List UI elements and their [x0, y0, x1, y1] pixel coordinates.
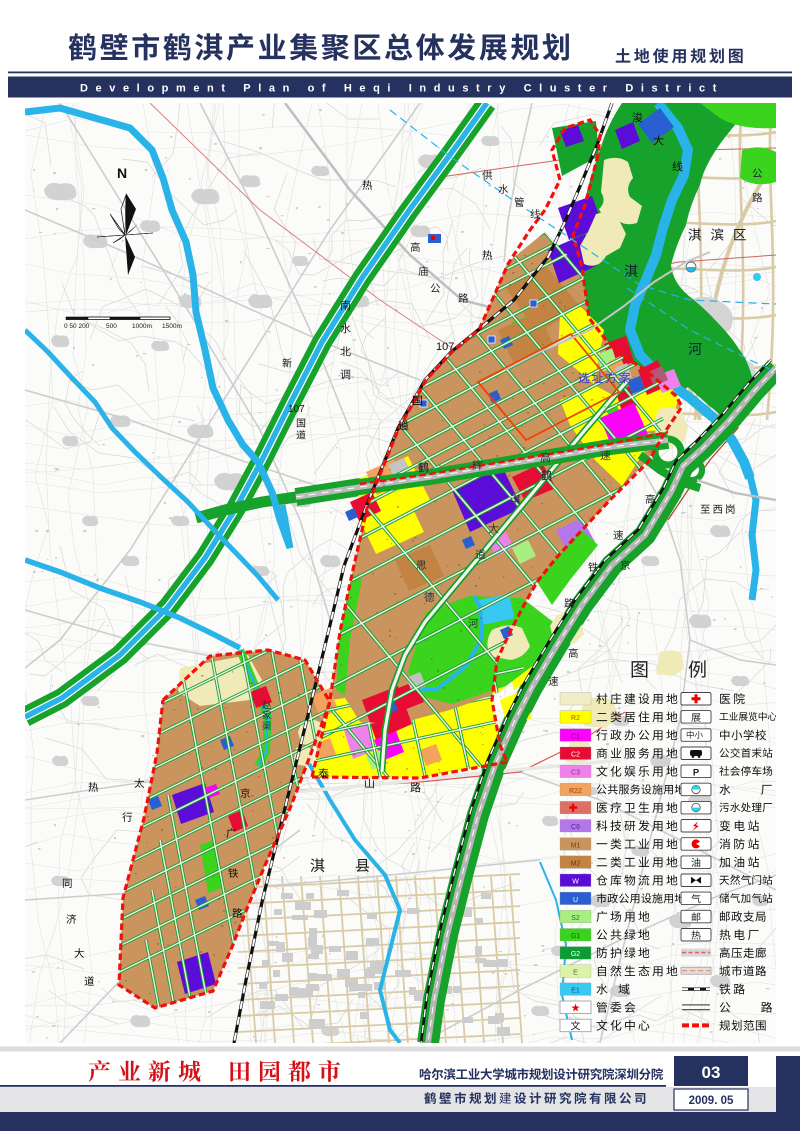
svg-text:W: W [572, 879, 579, 886]
svg-text:03: 03 [702, 1063, 721, 1082]
svg-text:C2: C2 [571, 752, 580, 759]
svg-text:U: U [573, 897, 578, 904]
svg-text:M1: M1 [571, 842, 581, 849]
svg-text:C6: C6 [571, 824, 580, 831]
svg-text:0 50 200: 0 50 200 [64, 323, 90, 330]
svg-text:G1: G1 [571, 933, 580, 940]
svg-text:R22: R22 [569, 788, 582, 795]
svg-text:M2: M2 [571, 861, 581, 868]
svg-text:107: 107 [436, 341, 454, 353]
svg-text:★: ★ [571, 1003, 581, 1015]
svg-text:S2: S2 [571, 915, 580, 922]
svg-text:1500m: 1500m [162, 323, 182, 330]
svg-text:107: 107 [288, 404, 305, 415]
svg-text:Development Plan of Heqi Indus: Development Plan of Heqi Industry Cluste… [80, 83, 724, 95]
svg-text:N: N [117, 165, 127, 181]
svg-text:E: E [573, 969, 578, 976]
svg-text:1000m: 1000m [132, 323, 152, 330]
svg-text:C3: C3 [571, 770, 580, 777]
svg-text:E1: E1 [571, 988, 580, 995]
svg-text:C1: C1 [571, 733, 580, 740]
svg-text:R2: R2 [571, 715, 580, 722]
svg-text:2009. 05: 2009. 05 [689, 1095, 734, 1107]
svg-text:500: 500 [106, 323, 117, 330]
svg-text:P: P [693, 768, 700, 779]
svg-text:G2: G2 [571, 951, 580, 958]
